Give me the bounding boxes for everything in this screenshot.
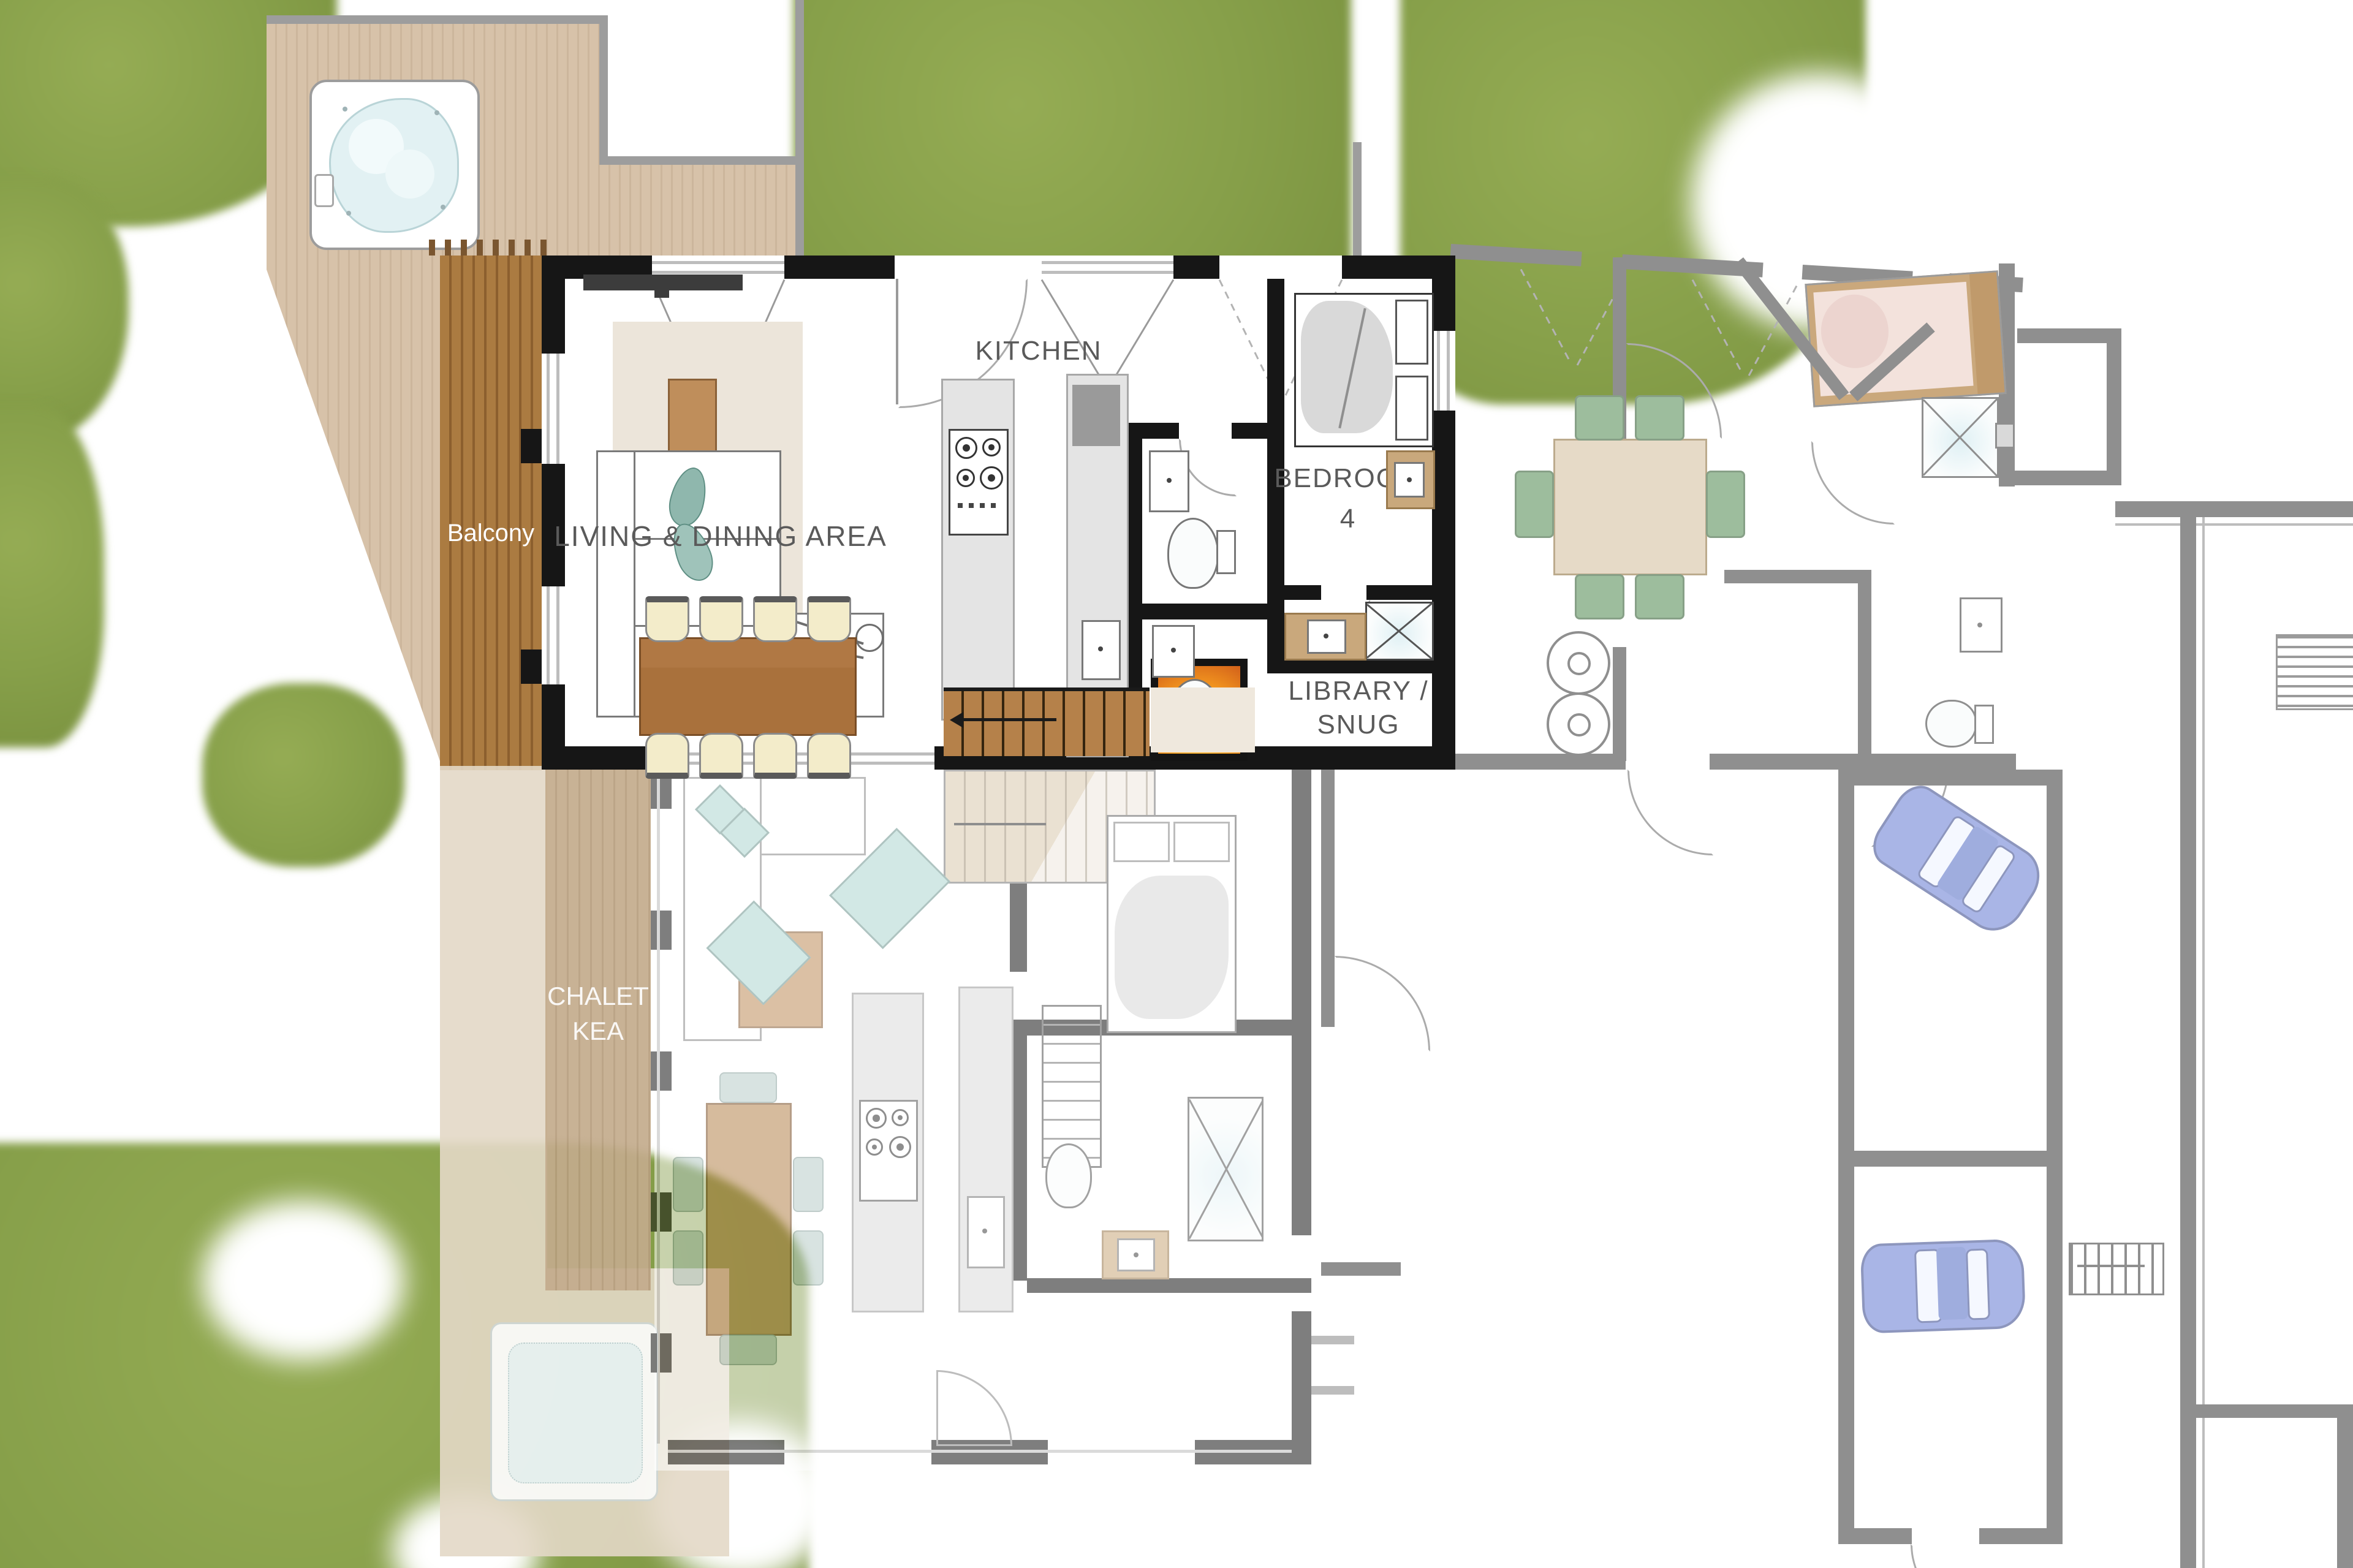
wall [1142,423,1179,439]
window-sill [657,770,660,1444]
window-sill [652,261,784,264]
chair [673,1230,703,1286]
oven-icon [1072,385,1120,446]
tv-stand [654,290,669,298]
chair [719,1335,777,1365]
sink-drain [1167,478,1172,483]
wall [1142,604,1267,619]
sink-icon [1152,625,1195,678]
bed-pillow [1113,822,1170,862]
wall-stub [521,650,542,684]
shower-icon [1188,1097,1264,1241]
stairs-icon [944,687,1150,756]
bed-pillow [1395,376,1428,441]
sink-drain [1171,648,1176,653]
chair [645,596,689,642]
window-sill [547,354,550,464]
stairs-arrow [954,823,1046,825]
chair [793,1157,824,1212]
dining-table-icon [639,637,857,736]
wall [784,256,895,279]
vanity [1386,450,1435,509]
burner [892,1109,909,1126]
burner [889,1136,911,1158]
sink-icon [1307,619,1346,654]
chair [753,733,797,779]
chair [807,596,851,642]
toilet-tank [1216,530,1236,574]
chair [719,1072,777,1103]
window-sill [1447,331,1450,411]
burner [980,466,1003,490]
lower-level-plan [0,0,2353,1568]
sink-icon [967,1196,1005,1268]
chair [673,1157,703,1212]
living-dining-label: LIVING & DINING AREA [549,520,892,553]
bed-duvet [1115,876,1229,1019]
sink-drain [1407,477,1412,482]
burner [866,1138,883,1156]
chair [699,733,743,779]
burner [957,469,975,487]
wall [1284,585,1321,600]
stairs-arrow-head [950,712,963,728]
toilet-icon [1167,518,1219,589]
shower-x [1366,604,1433,660]
library-line1: LIBRARY / [1270,674,1447,708]
window-sill [1437,331,1440,411]
floor-plan-canvas: Balcony [0,0,2353,1568]
sink-icon [1149,450,1189,512]
kitchen-label: KITCHEN [968,336,1109,366]
chair [645,733,689,779]
chair [807,733,851,779]
wall [1432,256,1455,331]
burner [982,438,1001,456]
person-figure [855,624,884,652]
bed-duvet [1301,301,1393,433]
dining-table-icon [706,1103,792,1336]
chair [793,1230,824,1286]
window-sill [652,271,784,274]
wall [542,256,565,354]
wall [542,746,656,770]
window-sill [556,354,559,464]
vanity [1102,1230,1169,1279]
burner [866,1108,887,1129]
shower-icon [1365,602,1434,661]
wall [1292,770,1311,1235]
tv-icon [583,275,743,290]
sink-icon [1117,1238,1155,1271]
hob-icon [859,1100,918,1202]
wall [1267,659,1455,673]
dishwasher-icon [1082,620,1121,680]
library-snug-label: LIBRARY / SNUG [1270,674,1447,741]
sofa-line [634,452,635,716]
sink-drain [982,1229,987,1233]
bed-pillow [1173,822,1230,862]
sink-icon [1394,462,1425,498]
stairs-arrow [958,718,1056,721]
chair [753,596,797,642]
window-sill [547,586,550,684]
wall [1173,256,1219,279]
wall-stub [521,429,542,463]
hob-controls [958,503,999,508]
hob-icon [949,429,1009,536]
window-sill [556,586,559,684]
bed-icon [1294,293,1434,447]
wall [1366,585,1455,600]
wall [1292,1311,1311,1464]
wall [1027,1278,1311,1293]
bed-pillow [1395,300,1428,365]
vanity [1284,613,1366,661]
toilet-icon [1045,1143,1092,1208]
wall [1232,423,1267,439]
window-sill [668,1450,1311,1453]
wall [651,770,672,1444]
burner [955,437,977,459]
sink-drain [1134,1252,1139,1257]
library-line2: SNUG [1270,708,1447,741]
window-sill [1042,271,1173,274]
sink-drain [1324,634,1328,638]
appliance-knob [1098,646,1103,651]
chair [699,596,743,642]
bed-icon [1107,815,1237,1033]
stairs-landing [1151,687,1255,752]
window-sill [1042,261,1173,264]
